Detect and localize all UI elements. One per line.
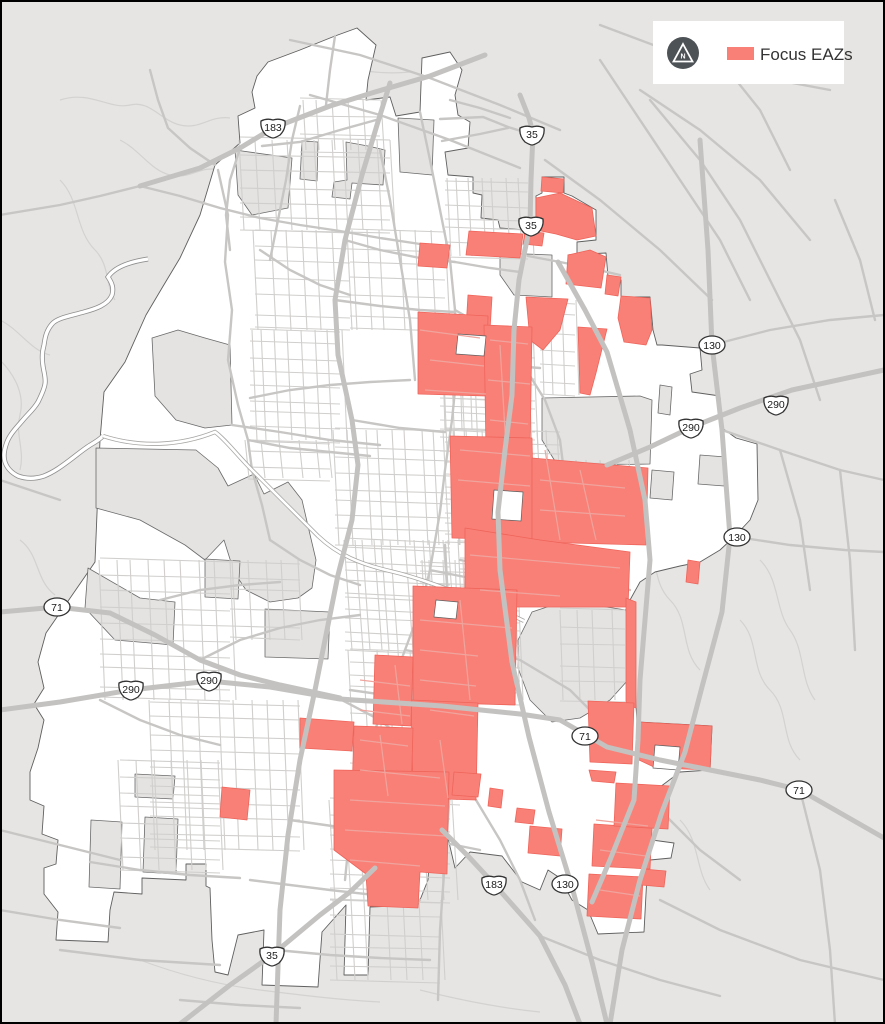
svg-text:71: 71	[51, 602, 63, 614]
svg-text:290: 290	[122, 684, 140, 696]
svg-text:35: 35	[266, 950, 278, 962]
svg-text:130: 130	[556, 879, 574, 891]
svg-text:290: 290	[200, 675, 218, 687]
svg-text:71: 71	[793, 785, 805, 797]
svg-text:N: N	[680, 54, 685, 61]
svg-text:130: 130	[728, 532, 746, 544]
svg-text:130: 130	[703, 340, 721, 352]
svg-text:35: 35	[525, 220, 537, 232]
svg-text:290: 290	[767, 399, 785, 411]
svg-text:71: 71	[579, 731, 591, 743]
svg-text:183: 183	[485, 879, 503, 891]
svg-text:Focus EAZs: Focus EAZs	[760, 45, 853, 64]
svg-text:35: 35	[526, 129, 538, 141]
svg-text:290: 290	[682, 422, 700, 434]
svg-text:183: 183	[264, 122, 282, 134]
